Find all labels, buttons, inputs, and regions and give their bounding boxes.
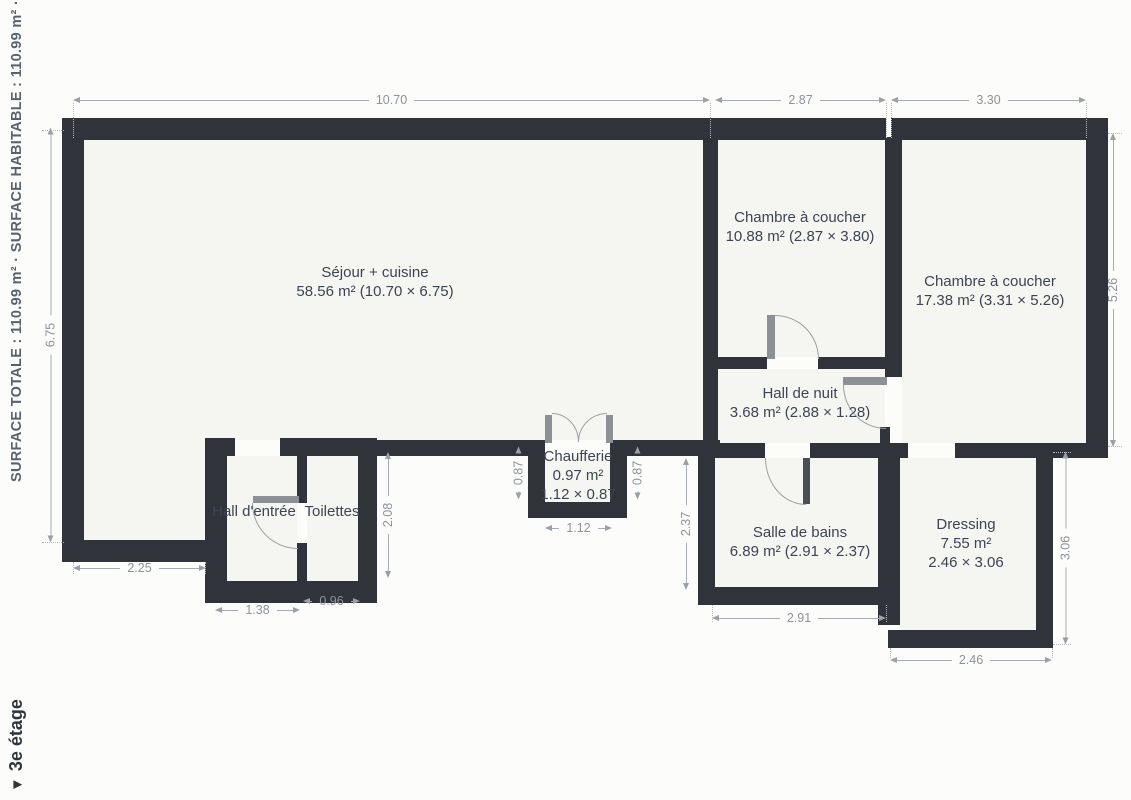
room-area: 58.56 m² (10.70 × 6.75)	[296, 282, 453, 301]
room-label-hall-entree: Hall d'entrée	[212, 502, 296, 521]
extension-line	[1108, 446, 1122, 447]
extension-line	[73, 562, 74, 574]
room-label-hall-de-nuit: Hall de nuit 3.68 m² (2.88 × 1.28)	[730, 384, 871, 422]
wall	[62, 118, 886, 140]
surface-summary-label: SURFACE TOTALE : 110.99 m² · SURFACE HAB…	[9, 0, 25, 482]
floor-plan: Séjour + cuisine 58.56 m² (10.70 × 6.75)…	[0, 0, 1131, 800]
wall	[62, 118, 84, 558]
triangle-marker-icon: ▼	[9, 777, 26, 792]
dimension-sdb-width: 2.91	[712, 610, 886, 626]
dimension-chaufferie-width: 1.12	[545, 520, 612, 536]
room-name: Séjour + cuisine	[296, 263, 453, 282]
room-label-chambre2: Chambre à coucher 17.38 m² (3.31 × 5.26)	[916, 272, 1065, 310]
wall	[1036, 443, 1053, 648]
room-name: Dressing	[928, 515, 1003, 534]
room-label-chaufferie: Chaufferie 0.97 m² 1.12 × 0.87	[540, 447, 615, 504]
dimension-sdb-height: 2.37	[678, 458, 694, 590]
wall	[715, 443, 765, 458]
wall	[880, 427, 890, 443]
wall	[715, 357, 767, 369]
wall	[62, 540, 208, 562]
extension-line	[73, 103, 74, 138]
wall	[703, 137, 718, 443]
wall	[698, 587, 888, 605]
floor-title-label: 3e étage	[6, 699, 26, 771]
extension-line	[42, 542, 64, 543]
room-area: 7.55 m²	[928, 534, 1003, 553]
extension-line	[886, 103, 887, 138]
wall	[878, 443, 900, 625]
extension-line	[886, 605, 887, 622]
extension-line	[890, 648, 891, 658]
extension-line	[710, 103, 711, 138]
room-area: 17.38 m² (3.31 × 5.26)	[916, 291, 1065, 310]
door-leaf	[545, 415, 552, 443]
dimension-sejour-left-width: 2.25	[73, 560, 206, 576]
wall	[698, 440, 715, 605]
room-label-sejour: Séjour + cuisine 58.56 m² (10.70 × 6.75)	[296, 263, 453, 301]
room-name: Chambre à coucher	[916, 272, 1065, 291]
extension-line	[1053, 452, 1071, 453]
room-floor-sejour-alcove	[84, 440, 205, 540]
floor-title: ▼3e étage	[6, 699, 27, 792]
room-dims: 1.12 × 0.87	[540, 485, 615, 504]
wall	[358, 440, 377, 600]
room-area: 3.68 m² (2.88 × 1.28)	[730, 403, 871, 422]
wall	[885, 137, 902, 377]
dimension-entree-width: 1.38	[215, 602, 300, 618]
extension-line	[1053, 644, 1071, 645]
wall	[297, 438, 307, 503]
dimension-top-chambre1: 2.87	[715, 92, 886, 108]
dimension-dressing-height: 3.06	[1058, 452, 1074, 645]
dimension-chaufferie-left-height: 0.87	[511, 447, 527, 500]
extension-line	[712, 605, 713, 622]
wall	[297, 543, 307, 583]
dimension-top-sejour: 10.70	[73, 92, 710, 108]
room-label-dressing: Dressing 7.55 m² 2.46 × 3.06	[928, 515, 1003, 572]
room-area: 6.89 m² (2.91 × 2.37)	[730, 542, 871, 561]
wall	[891, 118, 1108, 140]
extension-line	[1108, 133, 1122, 134]
room-name: Salle de bains	[730, 523, 871, 542]
room-area: 10.88 m² (2.87 × 3.80)	[726, 227, 875, 246]
room-label-toilettes: Toilettes	[304, 502, 359, 521]
wall	[888, 630, 1053, 648]
room-dims: 2.46 × 3.06	[928, 553, 1003, 572]
room-name: Toilettes	[304, 502, 359, 521]
extension-line	[205, 562, 206, 574]
room-name: Hall d'entrée	[212, 502, 296, 521]
extension-line	[42, 130, 64, 131]
dimension-top-chambre2: 3.30	[891, 92, 1086, 108]
room-name: Chaufferie	[540, 447, 615, 466]
dimension-chaufferie-right-height: 0.87	[630, 447, 646, 500]
dimension-toilettes-height: 2.08	[380, 452, 396, 578]
extension-line	[891, 103, 892, 138]
dimension-sejour-height: 6.75	[43, 128, 59, 543]
room-label-salle-de-bains: Salle de bains 6.89 m² (2.91 × 2.37)	[730, 523, 871, 561]
door-leaf	[767, 315, 775, 359]
room-label-chambre1: Chambre à coucher 10.88 m² (2.87 × 3.80)	[726, 208, 875, 246]
wall	[818, 357, 887, 369]
dimension-chambre2-height: 5.26	[1105, 133, 1121, 447]
door-leaf	[606, 415, 613, 443]
dimension-dressing-width: 2.46	[890, 652, 1052, 668]
wall	[205, 438, 235, 456]
extension-line	[1086, 103, 1087, 138]
extension-line	[1052, 648, 1053, 658]
dimension-toilettes-width: 0.96	[303, 593, 360, 609]
room-area: 0.97 m²	[540, 466, 615, 485]
room-name: Chambre à coucher	[726, 208, 875, 227]
room-name: Hall de nuit	[730, 384, 871, 403]
